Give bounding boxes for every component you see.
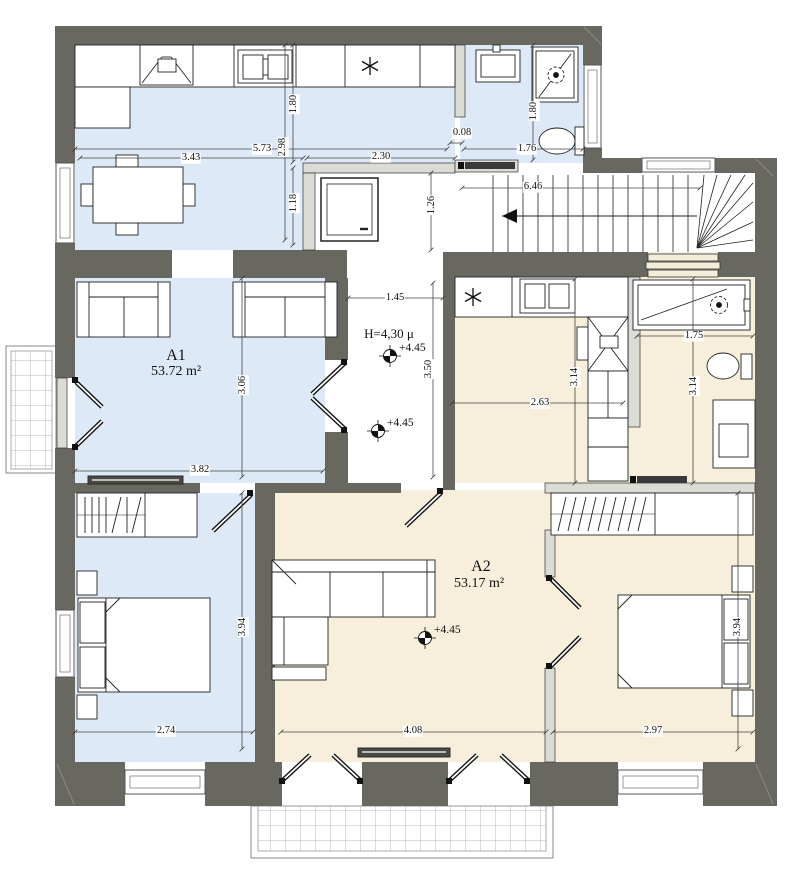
dim-label: 3.14 (689, 376, 700, 396)
dining-table-a1 (81, 155, 195, 235)
table-icon (93, 167, 183, 223)
dim-label: 2.74 (156, 726, 176, 737)
kitchen-sink-a2-icon (520, 279, 575, 313)
balcony-left (6, 346, 56, 473)
dim-label: 2.98 (278, 137, 289, 157)
dim-label: 3.14 (570, 367, 581, 387)
room-area-a2: 53.17 m² (454, 577, 504, 591)
dim-label: 1.45 (385, 293, 405, 304)
entry-steps-a2 (646, 254, 720, 277)
level-label: +4.45 (434, 624, 461, 636)
chair-icon (81, 184, 93, 206)
dim-label: 1.80 (529, 101, 540, 121)
room-area-a1: 53.72 m² (151, 365, 201, 379)
chair-icon (183, 184, 195, 206)
sink-icon (476, 45, 520, 82)
dim-label: 2.63 (530, 398, 550, 409)
dim-label: 0.08 (452, 128, 472, 139)
level-label: +4.45 (399, 342, 426, 354)
sofa-icon (77, 282, 170, 337)
console-shelf-icon (88, 476, 183, 484)
shower-icon (532, 47, 578, 102)
floor-plan-drawing (0, 0, 798, 882)
dim-label: 2.97 (643, 726, 663, 737)
tv-stand-icon (358, 748, 450, 757)
window-dining (56, 163, 74, 243)
window-bedroom-a1-bottom (125, 770, 205, 794)
window-bath-a1 (584, 65, 601, 148)
chair-icon (116, 223, 138, 235)
kitchen-sink-a1-icon (238, 50, 292, 83)
room-label-a1: A1 (166, 348, 186, 364)
chair-icon (116, 155, 138, 167)
dim-label: 4.08 (403, 726, 423, 737)
dim-label: 3.82 (190, 465, 210, 476)
window-stairwell (642, 158, 715, 172)
dim-label: 3.94 (733, 617, 744, 637)
dim-label: 3.50 (424, 359, 435, 379)
nightstand-icon (732, 690, 753, 716)
stair-direction-arrow-icon (502, 209, 697, 223)
double-bed-icon (78, 598, 210, 692)
dim-label: 1.75 (684, 331, 704, 342)
wardrobe-icon (77, 493, 197, 537)
cooker-hood-icon (140, 45, 193, 85)
level-label: +4.45 (387, 417, 414, 429)
pillow-icon (724, 643, 748, 684)
bedroom-a1 (77, 493, 210, 719)
floor-plan: 5.73 3.43 2.98 1.80 1.18 2.30 0.08 1.76 … (0, 0, 798, 882)
toilet-icon (539, 127, 584, 155)
nightstand-icon (732, 566, 753, 592)
room-label-a2: A2 (471, 559, 491, 575)
window-bedroom-a2-bottom (618, 770, 703, 794)
pillow-icon (80, 602, 105, 643)
dim-label: 2.30 (371, 152, 391, 163)
double-bed-icon (618, 595, 750, 688)
dim-label: 3.94 (238, 617, 249, 637)
dim-label: 1.80 (289, 94, 300, 114)
wardrobe-icon (551, 493, 753, 535)
dim-label: 5.73 (252, 144, 272, 155)
toilet-icon (707, 353, 752, 379)
dim-label: 3.06 (238, 375, 249, 395)
kitchen-cabinet-icon (588, 371, 628, 481)
dim-label: 3.43 (181, 153, 201, 164)
dim-label: 1.26 (427, 195, 438, 215)
window-bedroom-a1-left (56, 610, 74, 677)
level-marker-icon (367, 420, 389, 442)
dim-label: 1.76 (517, 144, 537, 155)
vanity-sink-icon (713, 400, 755, 468)
nightstand-icon (77, 695, 97, 719)
ceiling-height-note: H=4,30 μ (364, 326, 414, 342)
sofa-icon (233, 282, 337, 337)
elevator (321, 178, 378, 241)
bathtub-icon (633, 280, 750, 330)
level-marker-icon (379, 345, 401, 367)
balcony-bottom (251, 806, 553, 858)
dim-label: 6.46 (523, 182, 543, 193)
dim-label: 1.18 (289, 193, 300, 213)
nightstand-icon (77, 571, 97, 595)
pillow-icon (80, 647, 105, 688)
